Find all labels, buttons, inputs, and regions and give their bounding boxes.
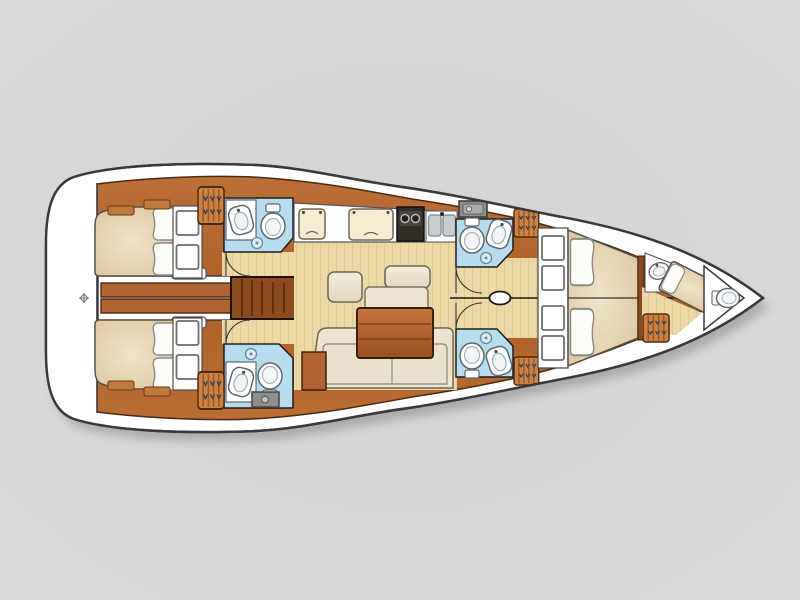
seat (328, 272, 362, 302)
walkway-plank-top (101, 283, 232, 297)
shower-drain (481, 333, 492, 344)
shelf (108, 206, 134, 215)
hanging-locker (198, 187, 224, 224)
storage-cubby (542, 336, 564, 360)
walkway-plank-bottom (101, 299, 232, 313)
aft-cabin-port (95, 200, 202, 278)
hanging-locker (643, 314, 669, 342)
storage-cubby (177, 211, 199, 235)
storage-cubby (542, 266, 564, 290)
fridge-lid (299, 209, 325, 239)
double-sink (426, 211, 457, 242)
hanging-locker (514, 209, 539, 237)
storage-cubby (177, 245, 199, 269)
pillow (571, 239, 594, 285)
seat (385, 266, 430, 288)
appliance-dial (262, 396, 269, 403)
oven-dial (466, 206, 471, 211)
shelf (144, 200, 170, 209)
hanging-locker (514, 357, 539, 385)
side-cabinet (302, 352, 326, 390)
shower-drain (252, 238, 263, 249)
mast-post (490, 292, 511, 305)
head-lobby-planks (222, 320, 296, 344)
oven-window (463, 204, 483, 214)
fridge-lid-wide (349, 209, 393, 240)
stove (397, 207, 424, 241)
pillow (571, 309, 594, 355)
shower-drain (246, 349, 257, 360)
screenshot-root (0, 0, 800, 600)
shelf (144, 387, 170, 396)
storage-cubby (542, 306, 564, 330)
storage-cubby (542, 236, 564, 260)
dining-table (357, 308, 433, 358)
toilet (712, 289, 740, 308)
hanging-locker (198, 372, 224, 409)
boat-plan-svg (0, 0, 800, 600)
shelf (108, 381, 134, 390)
stern-platform-deck (46, 170, 97, 426)
storage-cubby (177, 355, 199, 379)
companionway-steps (231, 277, 296, 319)
storage-cubby (177, 321, 199, 345)
shower-drain (481, 253, 492, 264)
aft-cabin-starboard (95, 318, 202, 396)
stern-platform (46, 170, 97, 426)
head-lobby-planks (222, 252, 296, 276)
